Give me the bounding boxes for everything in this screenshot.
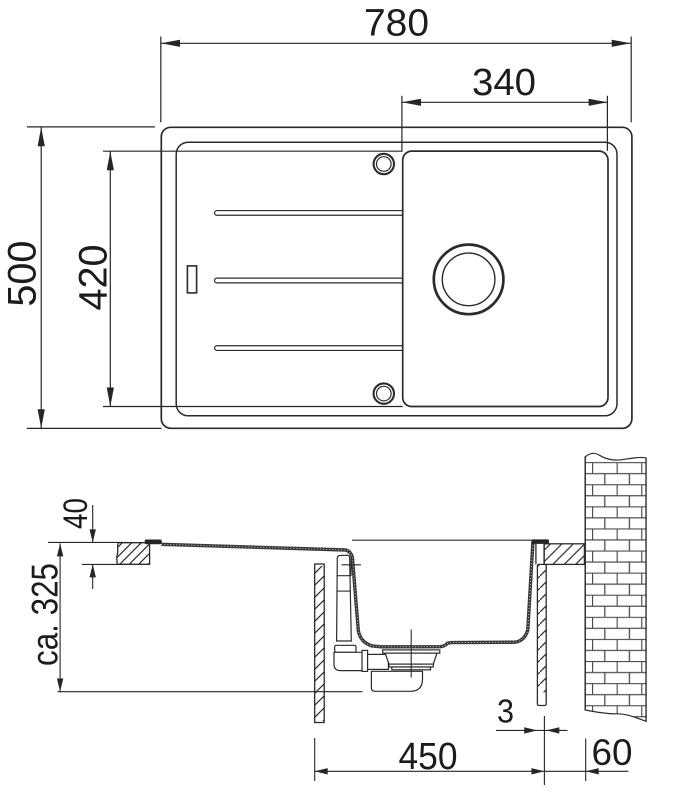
svg-text:340: 340 (472, 62, 536, 104)
svg-text:450: 450 (399, 736, 458, 778)
svg-text:40: 40 (57, 498, 95, 529)
svg-text:3: 3 (497, 693, 514, 730)
svg-text:420: 420 (71, 245, 115, 311)
svg-text:500: 500 (1, 241, 45, 307)
svg-text:780: 780 (364, 2, 429, 44)
svg-text:ca. 325: ca. 325 (25, 563, 66, 666)
svg-text:60: 60 (592, 731, 633, 773)
